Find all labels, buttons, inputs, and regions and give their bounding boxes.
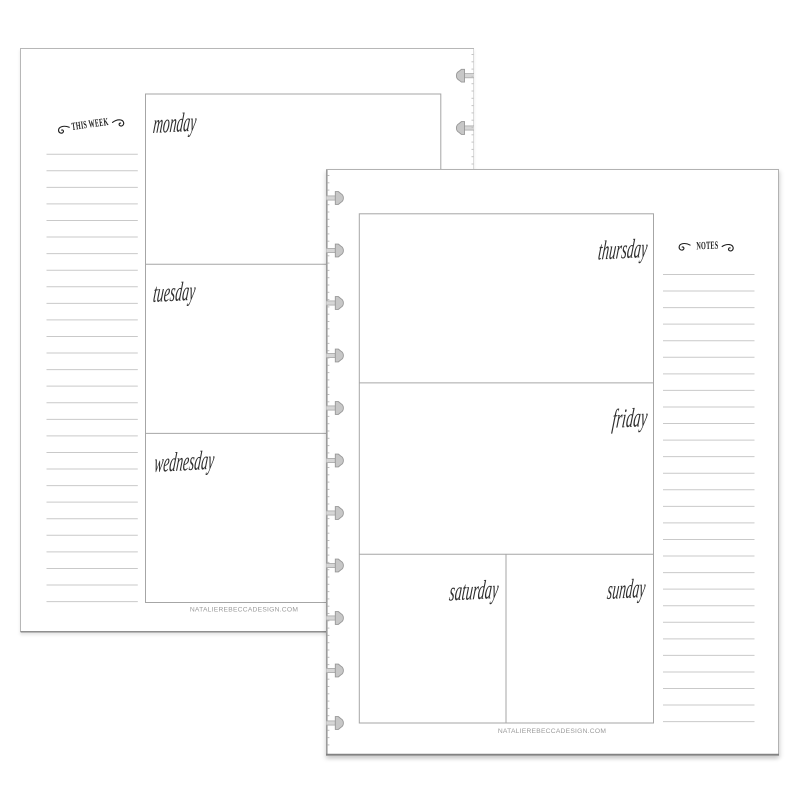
svg-text:sunday: sunday <box>606 573 647 605</box>
svg-text:thursday: thursday <box>597 233 649 266</box>
svg-text:tuesday: tuesday <box>151 276 196 308</box>
svg-text:saturday: saturday <box>448 574 500 607</box>
svg-text:friday: friday <box>611 401 649 434</box>
svg-text:NOTES: NOTES <box>696 239 718 252</box>
svg-text:wednesday: wednesday <box>152 445 215 478</box>
svg-text:NATALIEREBECCADESIGN.COM: NATALIEREBECCADESIGN.COM <box>498 728 606 735</box>
svg-text:monday: monday <box>151 107 197 139</box>
svg-text:NATALIEREBECCADESIGN.COM: NATALIEREBECCADESIGN.COM <box>189 607 297 614</box>
